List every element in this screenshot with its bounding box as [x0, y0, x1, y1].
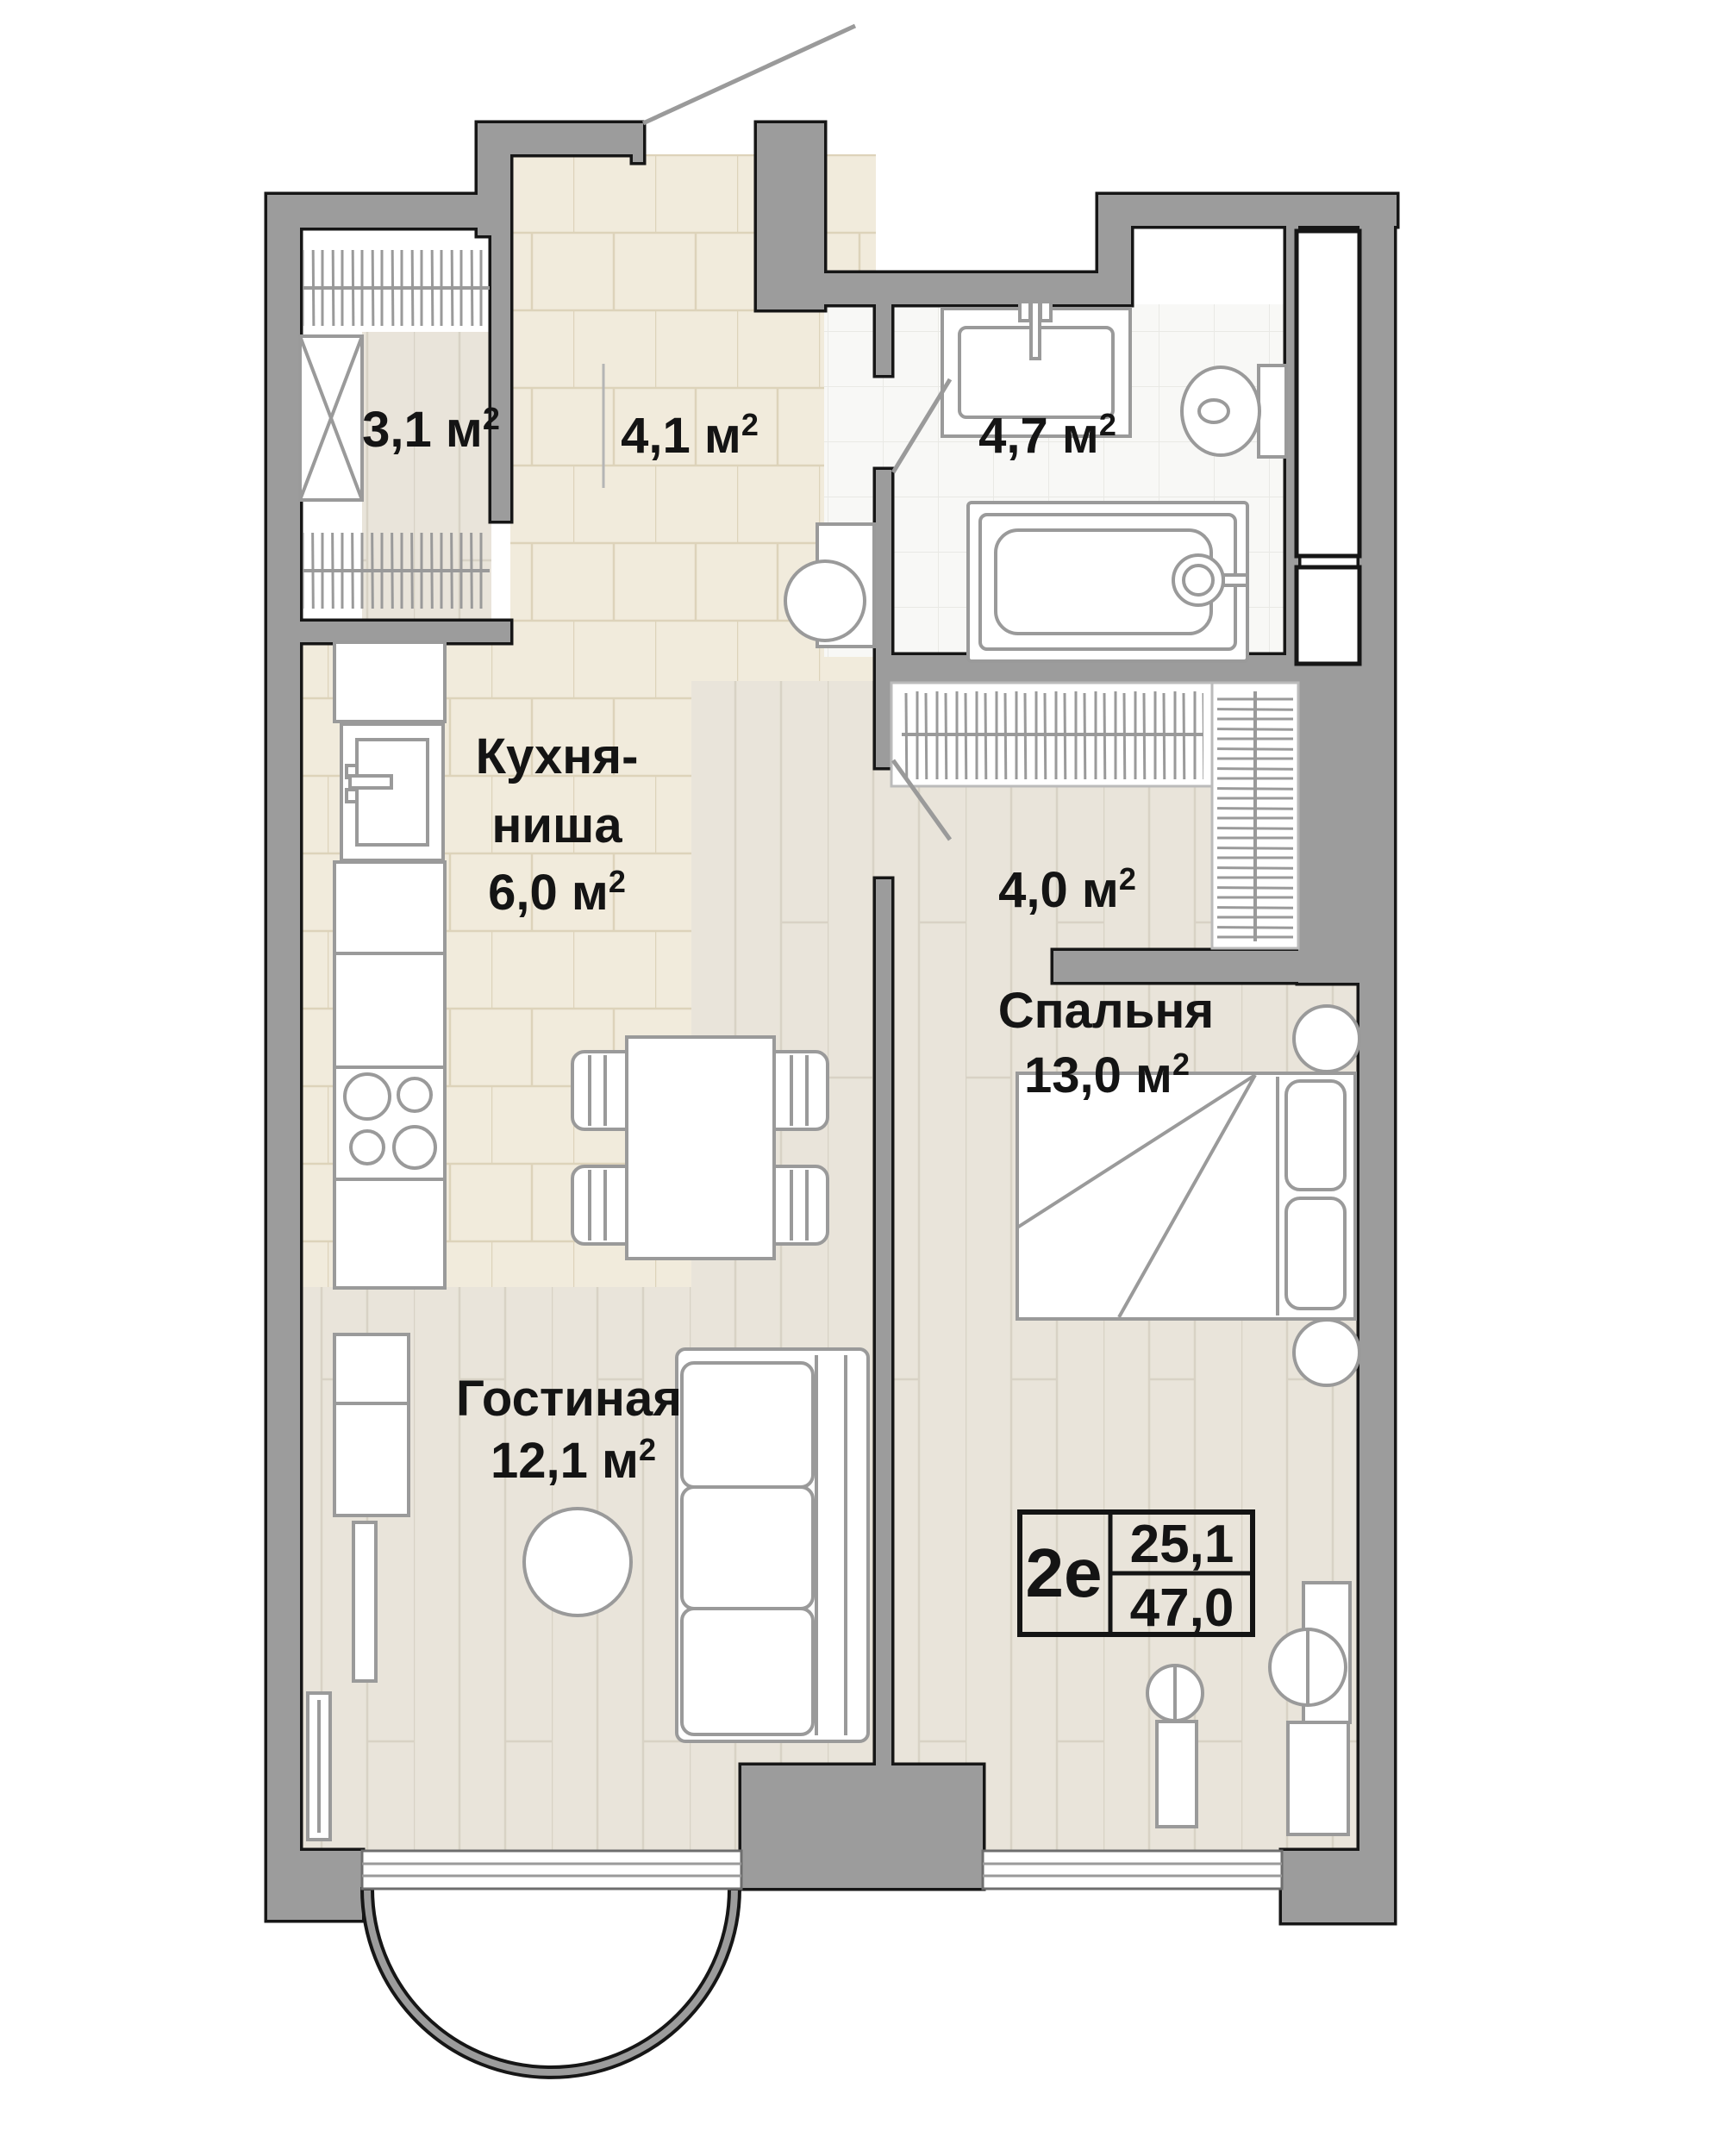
kitchen-name-line1: Кухня-	[476, 728, 639, 784]
wardrobe-area-label: 3,1 м2	[362, 401, 500, 458]
dining-table	[627, 1037, 774, 1259]
burner-icon	[394, 1127, 435, 1168]
total-area-value: 47,0	[1130, 1578, 1234, 1638]
wall-segment	[267, 195, 497, 228]
wall-pier-left	[267, 1851, 362, 1920]
washing-machine-door	[785, 561, 865, 641]
burner-icon	[345, 1074, 390, 1119]
kitchen-counter	[334, 642, 445, 722]
kitchen-counter	[334, 953, 445, 1067]
living-area-value: 25,1	[1130, 1515, 1234, 1574]
wall-segment	[1298, 664, 1359, 983]
burner-icon	[351, 1131, 384, 1164]
bedroom-name-label: Спальня	[998, 983, 1215, 1039]
sink-tap	[1031, 302, 1040, 359]
kitchen-area-label: 6,0 м2	[488, 864, 626, 921]
coffee-table	[524, 1509, 631, 1615]
floor-plan-canvas: 3,1 м2 4,1 м2 4,7 м2 Кухня- ниша 6,0 м2 …	[0, 0, 1725, 2156]
bathtub-drain-inner	[1184, 566, 1213, 595]
wall-segment	[810, 273, 1108, 304]
bedroom-window	[983, 1851, 1282, 1889]
wall-right	[1359, 195, 1394, 1888]
sink-tap-handle	[1041, 302, 1051, 321]
wall-partition-central	[876, 879, 891, 1772]
wall-wardrobe-bottom	[298, 622, 510, 642]
toilet-drain	[1199, 400, 1228, 422]
toilet-tank	[1259, 366, 1286, 457]
sofa-cushion	[682, 1487, 813, 1609]
side-unit	[1157, 1722, 1197, 1827]
fridge-hinge	[347, 790, 357, 802]
nightstand	[1294, 1006, 1359, 1072]
shaft-box	[1297, 567, 1359, 664]
tv-bench	[334, 1334, 409, 1403]
tv-bench	[334, 1403, 409, 1515]
entrance-leader-line	[643, 26, 855, 123]
sink-tap-handle	[1020, 302, 1030, 321]
wall-segment	[267, 195, 300, 1920]
wall-pier-right	[1282, 1851, 1394, 1922]
pillow	[1286, 1081, 1345, 1190]
living-window	[362, 1851, 741, 1889]
sofa-cushion	[682, 1609, 813, 1734]
wall-segment	[1098, 195, 1397, 226]
fridge-door	[357, 740, 428, 845]
wall-entrance-top	[478, 123, 643, 154]
bay-window-arc	[362, 1889, 740, 2078]
floor-plan: 3,1 м2 4,1 м2 4,7 м2 Кухня- ниша 6,0 м2 …	[0, 0, 1725, 2156]
sofa-cushion	[682, 1363, 813, 1487]
kitchen-counter	[334, 1179, 445, 1288]
wall-door-notch	[633, 136, 643, 162]
bedroom-area-label: 13,0 м2	[1024, 1047, 1190, 1103]
bathroom-area-label: 4,7 м2	[978, 407, 1116, 464]
corridor-area-label: 4,0 м2	[998, 861, 1136, 918]
nightstand	[1294, 1320, 1359, 1385]
burner-icon	[398, 1078, 431, 1111]
tv-panel	[353, 1522, 376, 1681]
dresser	[1288, 1722, 1348, 1834]
living-area-label: 12,1 м2	[491, 1432, 656, 1489]
pillow	[1286, 1198, 1345, 1309]
kitchen-counter	[334, 862, 445, 953]
shaft-box	[1297, 231, 1359, 556]
living-name-label: Гостиная	[456, 1371, 682, 1427]
bathtub-overflow	[1223, 575, 1247, 585]
kitchen-name-line2: ниша	[491, 797, 622, 853]
hallway-area-label: 4,1 м2	[621, 407, 759, 464]
apartment-type-label: 2е	[1026, 1534, 1103, 1611]
wall-partition	[876, 470, 891, 767]
wall-partition	[876, 293, 891, 375]
wall-pier-center	[741, 1765, 983, 1888]
fridge-handle	[350, 776, 391, 788]
wall-wardrobe-right	[491, 228, 510, 521]
